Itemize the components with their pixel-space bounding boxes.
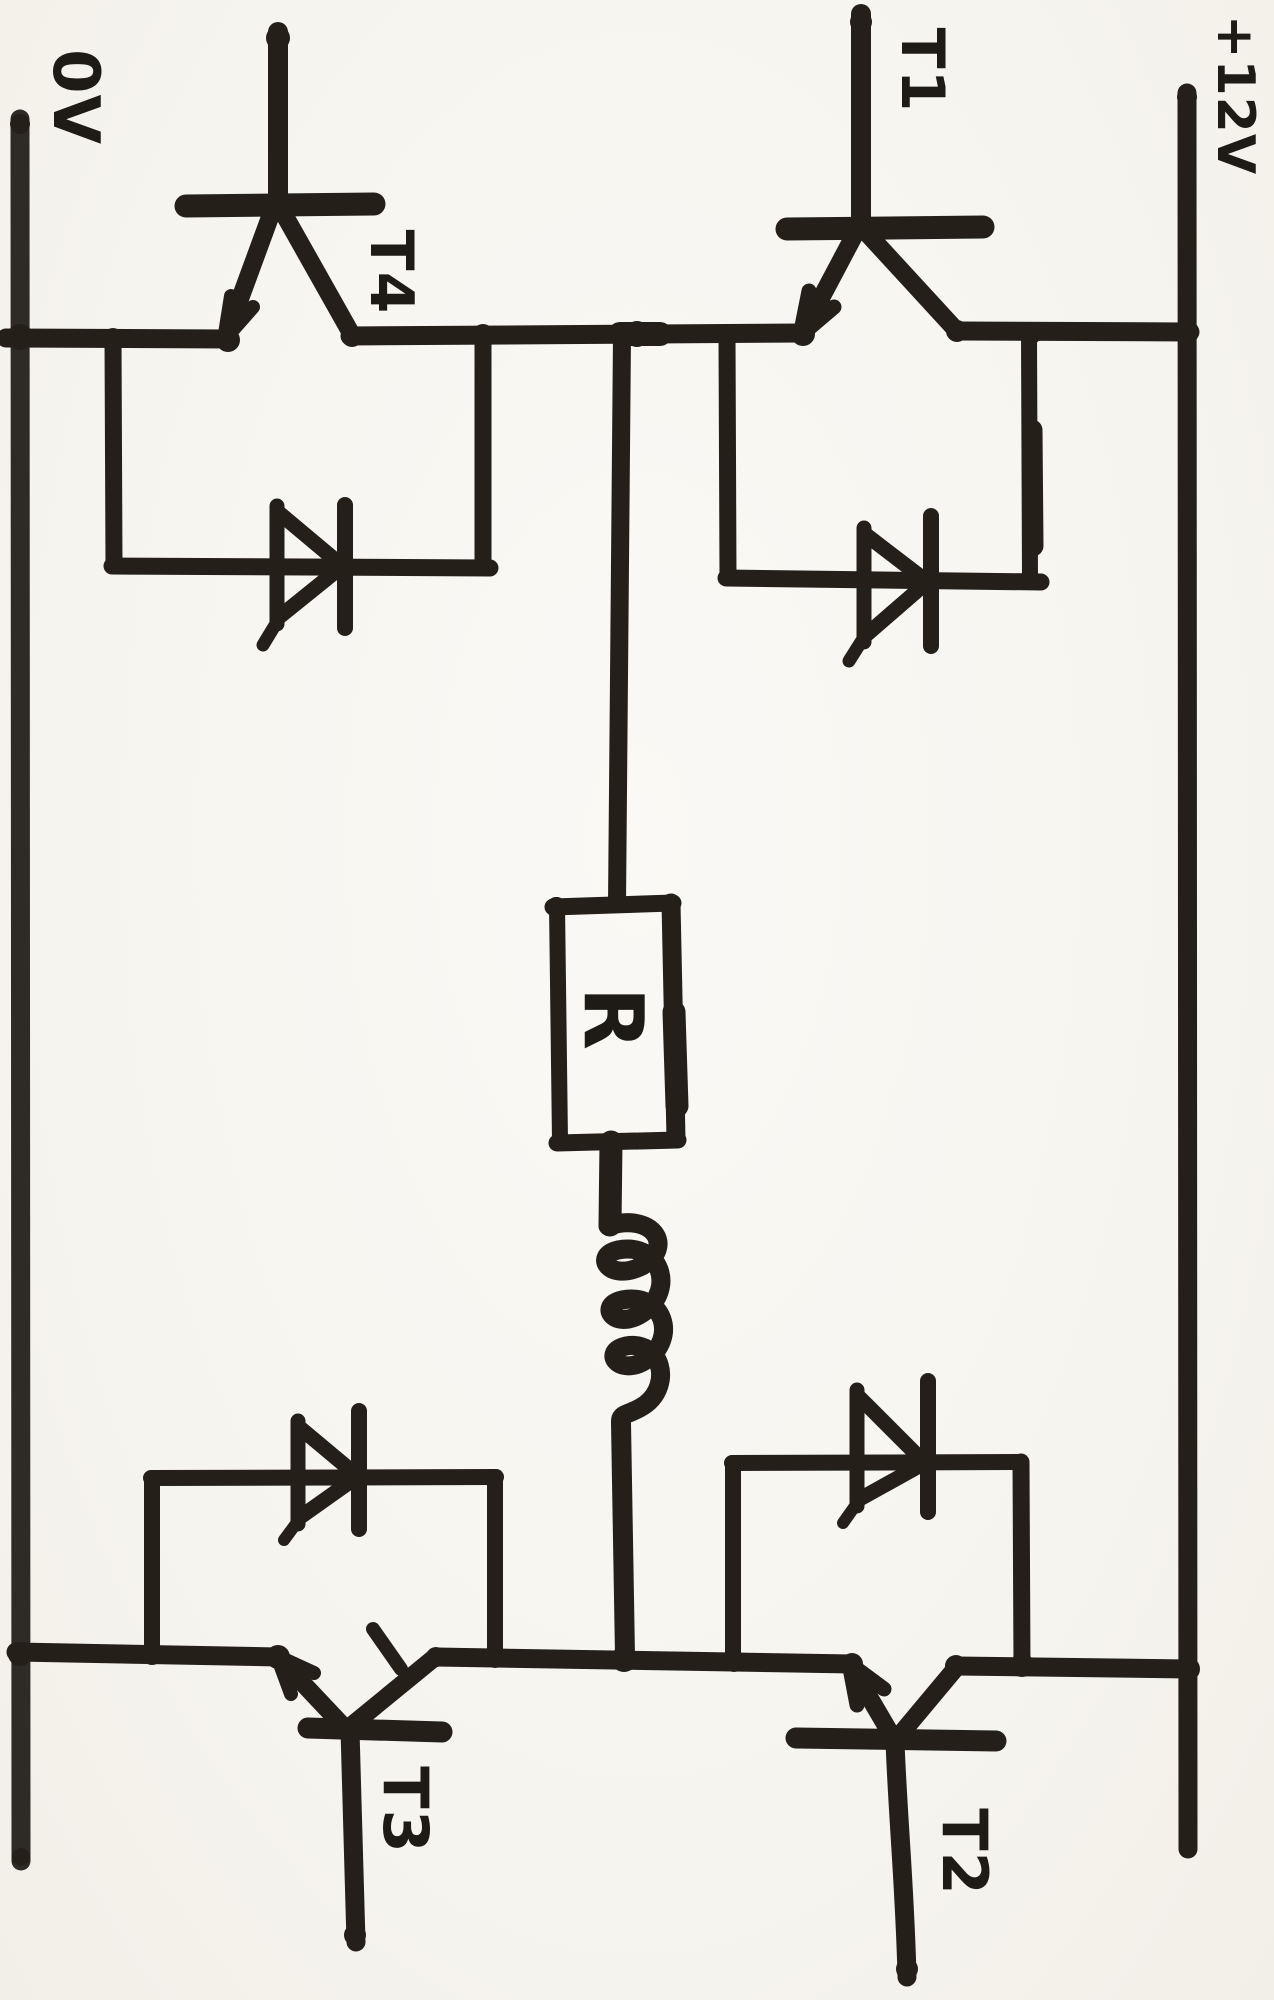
- transistor-t1: T1: [787, 11, 983, 336]
- junction-blob: [341, 325, 363, 347]
- t1-base-plate: [787, 227, 983, 229]
- t2-loop-top-edge: [732, 1462, 1021, 1463]
- junction-blob: [841, 1653, 863, 1675]
- junction-blob: [791, 322, 815, 346]
- diode-loop-t1: [726, 334, 1041, 661]
- t2-diode-triangle: [857, 1390, 921, 1506]
- junction-blob: [551, 1133, 567, 1149]
- junction-blob: [472, 324, 494, 346]
- bottom-wire-right-segment: [956, 1666, 1189, 1669]
- diode-loop-t3: [151, 1411, 496, 1657]
- resistor-to-coil-lead: [610, 1142, 611, 1225]
- load-branch: R: [553, 336, 678, 1656]
- junction-blob: [624, 321, 650, 347]
- diode-loop-t2: [732, 1381, 1022, 1666]
- resistor-box-right-reink: [674, 1012, 677, 1106]
- resistor-box-left: [557, 905, 560, 1141]
- transistor-t3: T3: [277, 1629, 442, 1946]
- junction-blob: [103, 328, 123, 348]
- junction-blob: [142, 1645, 162, 1665]
- rail-end-cap: [1177, 87, 1197, 107]
- resistor-box: R: [553, 903, 678, 1143]
- transistor-t4: T4: [186, 26, 426, 340]
- coil-to-bottom-wire-lead: [621, 1423, 625, 1656]
- junction-blob: [602, 1134, 622, 1154]
- left-rail-0v-wire: [20, 119, 21, 1861]
- junction-blob: [7, 324, 33, 350]
- junction-blob: [723, 1650, 745, 1672]
- resistor-box-top: [553, 903, 673, 907]
- t3-base-plate: [308, 1728, 442, 1732]
- t2-label: T2: [928, 1808, 1001, 1895]
- right-rail-label: +12V: [1205, 15, 1265, 175]
- junction-blob: [547, 897, 565, 915]
- t4-label: T4: [356, 230, 426, 315]
- junction-blob: [1175, 320, 1199, 344]
- junction-blob: [8, 1642, 32, 1666]
- junction-blob: [1010, 1653, 1034, 1677]
- t3-base-lead: [350, 1730, 356, 1942]
- t3-collector-stray-stroke: [373, 1629, 401, 1669]
- diode-loop-t4: [112, 334, 490, 645]
- t4-loop-bottom-edge: [112, 566, 490, 568]
- junction-blob: [216, 328, 240, 352]
- right-rail-12v-wire: [1187, 93, 1188, 1849]
- rail-end-cap: [10, 114, 30, 134]
- t2-base-lead-cap: [896, 1958, 918, 1980]
- junction-blob: [663, 895, 681, 913]
- junction-blob: [946, 320, 968, 342]
- t2-diode-icon: [843, 1381, 928, 1523]
- t2-loop-right-edge: [1021, 1462, 1022, 1666]
- left-rail-label: 0V: [38, 49, 112, 145]
- h-bridge-schematic: T4 T1: [0, 0, 1274, 2000]
- t1-label: T1: [887, 28, 957, 113]
- t1-diode-stray-stroke: [849, 634, 866, 661]
- top-wire-right-segment: [956, 331, 1190, 332]
- scanned-schematic-page: T4 T1: [0, 0, 1274, 2000]
- transistor-t2: T2: [796, 1663, 1001, 1980]
- t3-loop-top-edge: [151, 1477, 496, 1478]
- junction-blob: [611, 1646, 637, 1672]
- t4-collector-leg: [281, 209, 352, 335]
- t2-collector-leg: [899, 1669, 955, 1736]
- t4-base-lead-cap: [266, 26, 290, 50]
- rail-end-cap: [1179, 1836, 1197, 1854]
- t1-collector-leg: [865, 231, 956, 330]
- rail-end-cap: [12, 1848, 30, 1866]
- junction-blob: [266, 1645, 290, 1669]
- t3-base-lead-cap: [344, 1924, 366, 1946]
- t2-diode-stray-stroke: [843, 1499, 860, 1523]
- inductor-coil-icon: [606, 1223, 664, 1424]
- t1-base-lead-cap: [850, 11, 872, 33]
- rail-labels: 0V +12V: [38, 15, 1265, 175]
- junction-blob: [716, 325, 738, 347]
- load-top-lead: [617, 336, 622, 904]
- junction-blob: [426, 1647, 446, 1667]
- t1-loop-left-edge: [727, 337, 728, 578]
- t3-label: T3: [369, 1766, 442, 1853]
- resistor-label: R: [565, 987, 660, 1051]
- junction-blob: [945, 1655, 967, 1677]
- t4-loop-left-edge: [113, 339, 114, 566]
- junction-blob: [666, 1130, 684, 1148]
- junction-blob: [1176, 1657, 1200, 1681]
- t2-base-lead: [895, 1742, 907, 1977]
- t4-diode-stray-stroke: [263, 617, 280, 645]
- top-wire: [6, 331, 1190, 339]
- power-rails: [20, 93, 1188, 1861]
- junction-blob: [1019, 323, 1041, 345]
- t1-loop-right-edge-reink: [1032, 430, 1033, 546]
- junction-blob: [484, 1646, 506, 1668]
- t1-loop-bottom-edge: [726, 578, 1041, 582]
- t3-diode-stray-stroke: [284, 1517, 301, 1540]
